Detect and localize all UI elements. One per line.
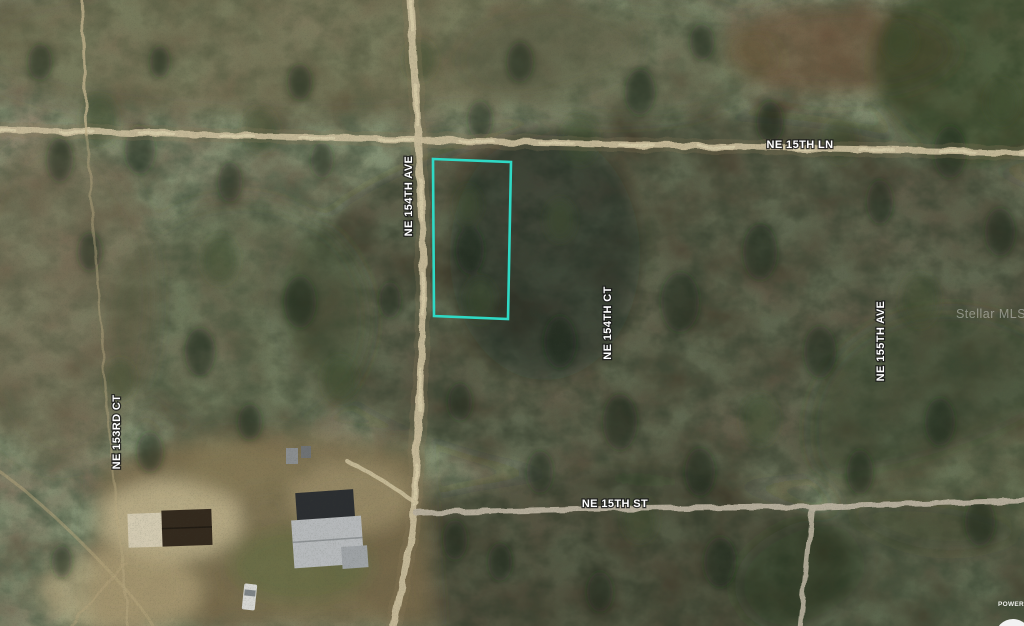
street-label-ne-153rd-ct: NE 153RD CT: [111, 395, 123, 470]
photo-grain-overlay: [0, 0, 1024, 626]
stellar-mls-watermark: Stellar MLS: [956, 307, 1024, 321]
street-label-ne-15th-ln: NE 15TH LN: [767, 139, 834, 151]
satellite-image: NE 15TH LN NE 154TH AVE NE 154TH CT NE 1…: [0, 0, 1024, 626]
street-label-ne-154th-ct: NE 154TH CT: [602, 286, 614, 359]
street-label-ne-155th-ave: NE 155TH AVE: [875, 301, 887, 382]
aerial-map-canvas: NE 15TH LN NE 154TH AVE NE 154TH CT NE 1…: [0, 0, 1024, 626]
powered-by-label: POWERED BY: [998, 601, 1024, 608]
street-label-ne-15th-st: NE 15TH ST: [582, 498, 648, 510]
street-label-ne-154th-ave: NE 154TH AVE: [403, 156, 415, 237]
